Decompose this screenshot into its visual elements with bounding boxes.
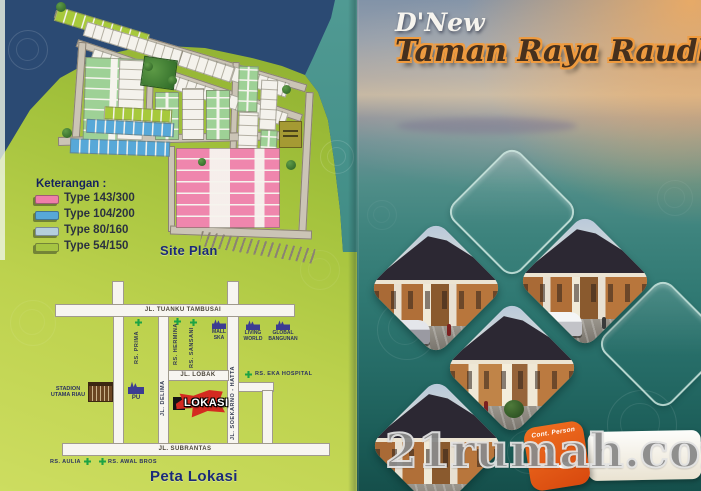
person-figure — [602, 317, 606, 329]
tree-icon — [168, 76, 177, 85]
tree-icon — [144, 62, 153, 71]
label-rs-hermina: RS. HERMINA — [173, 327, 179, 365]
person-figure — [447, 324, 451, 336]
brochure: Site Plan Keterangan : Type 143/300 Type… — [0, 0, 701, 491]
legend-label-type80: Type 80/160 — [64, 224, 128, 236]
label-living-world: LIVING WORLD — [240, 331, 266, 343]
legend: Keterangan : Type 143/300 Type 104/200 T… — [0, 176, 180, 251]
label-lokasi: LOKASI — [184, 397, 229, 409]
swirl-decoration — [657, 180, 693, 216]
legend-label-type143: Type 143/300 — [64, 192, 135, 204]
label-rs-awal-bros: RS. AWAL BROS — [108, 459, 157, 465]
right-panel: D'New Taman Raya Raudha — [357, 0, 701, 491]
tree-icon — [56, 2, 66, 12]
legend-swatch-type80 — [35, 227, 59, 236]
hospital-cross-icon — [84, 458, 91, 465]
lots-white — [182, 88, 204, 140]
site-plan-park — [140, 56, 178, 90]
bush — [483, 480, 499, 491]
label-stadion-utama-riau: STADION UTAMA RIAU — [48, 386, 88, 399]
stadium-icon — [88, 382, 113, 402]
label-jl-delima: JL. DELIMA — [160, 356, 166, 416]
label-rs-sansani: RS. SANSANI — [189, 328, 195, 368]
tree-icon — [282, 85, 291, 94]
legend-swatch-type104 — [35, 211, 59, 220]
building-icon-mall-ska — [212, 318, 226, 329]
label-jl-lobak: JL. LOBAK — [170, 372, 226, 378]
watermark: 21rumah.com — [385, 424, 701, 479]
road-branch-east-vertical — [262, 390, 273, 448]
lots-type104 — [70, 138, 170, 156]
road-vertical-west — [113, 316, 124, 448]
building-icon-living-world — [246, 319, 260, 330]
hospital-cross-icon — [99, 458, 106, 465]
legend-swatch-type54 — [35, 243, 59, 252]
label-jl-subrantas: JL. SUBRANTAS — [140, 446, 230, 452]
swirl-decoration — [367, 200, 397, 230]
legend-label-type104: Type 104/200 — [64, 208, 135, 220]
lots-white — [259, 80, 279, 131]
hospital-cross-icon — [135, 319, 142, 326]
label-jl-tuanku-tambusai: JL. TUANKU TAMBUSAI — [128, 307, 238, 313]
road-vertical-north-west — [112, 281, 124, 305]
horizon-hills — [397, 118, 577, 134]
map-title: Peta Lokasi — [150, 468, 238, 485]
house-driveway — [369, 484, 505, 491]
label-pu: PU — [128, 395, 144, 402]
lots-type80 — [206, 90, 230, 140]
label-mall-ska: MALL SKA — [207, 330, 231, 342]
label-rs-eka-hospital: RS. EKA HOSPITAL — [255, 371, 312, 377]
tree-icon — [286, 160, 296, 170]
house-windows — [450, 371, 573, 389]
location-map: JL. TUANKU TAMBUSAI JL. DELIMA JL. SOEKA… — [0, 276, 357, 491]
lots-type143 — [176, 148, 280, 228]
tree-icon — [198, 158, 206, 166]
label-jl-soekarno-hatta: JL. SOEKARNO - HATTA — [230, 328, 236, 440]
building-icon-global-bangunan — [276, 319, 290, 330]
label-rs-aulia: RS. AULIA — [50, 459, 81, 465]
tree — [504, 400, 524, 418]
label-global-bangunan: GLOBAL BANGUNAN — [268, 331, 298, 343]
legend-title: Keterangan : — [36, 178, 106, 190]
house-windows — [523, 284, 646, 302]
legend-swatch-type143 — [35, 195, 59, 204]
brand-script-title: D'New — [395, 8, 485, 37]
lots-type80 — [237, 66, 259, 113]
label-rs-prima: RS. PRIMA — [134, 328, 140, 364]
site-plan-facility-block — [279, 121, 302, 148]
building-icon-pu — [128, 380, 144, 394]
road-vertical-north-east — [227, 281, 239, 305]
hospital-cross-icon — [190, 319, 197, 326]
hospital-cross-icon — [245, 371, 252, 378]
tree-icon — [62, 128, 72, 138]
house-windows — [374, 291, 497, 309]
left-panel: Site Plan Keterangan : Type 143/300 Type… — [0, 0, 357, 491]
person-figure — [484, 401, 488, 413]
main-title: Taman Raya Raudha — [395, 34, 701, 69]
legend-label-type54: Type 54/150 — [64, 240, 128, 252]
panel-fold-shadow — [348, 0, 359, 491]
